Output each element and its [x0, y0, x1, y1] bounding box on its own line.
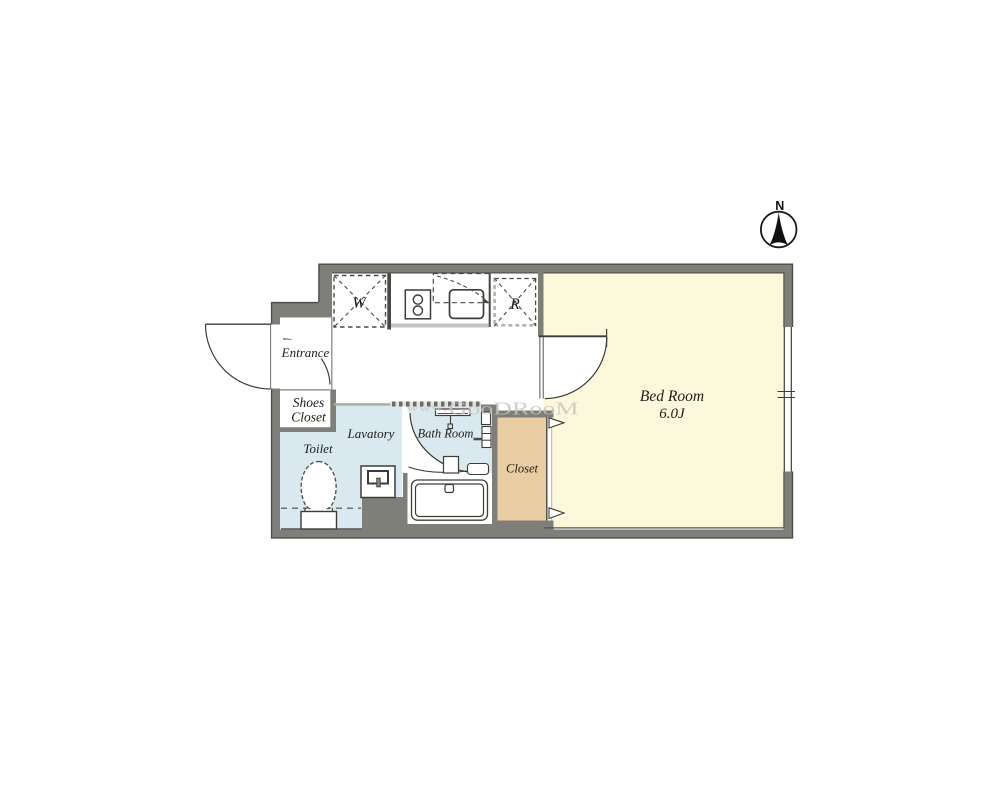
svg-text:Lavatory: Lavatory: [347, 426, 395, 441]
svg-text:W: W: [352, 295, 367, 312]
svg-text:Bed Room: Bed Room: [640, 388, 704, 405]
svg-text:www.: www.: [406, 404, 447, 414]
svg-text:GooDRooM: GooDRooM: [449, 399, 579, 419]
svg-text:Closet: Closet: [291, 410, 327, 425]
svg-text:Entrance: Entrance: [281, 345, 330, 360]
svg-text:R: R: [509, 296, 520, 313]
svg-text:Bath Room: Bath Room: [418, 427, 474, 441]
svg-text:6.0J: 6.0J: [659, 406, 686, 422]
svg-text:Shoes: Shoes: [293, 395, 325, 410]
svg-text:Closet: Closet: [506, 462, 538, 476]
svg-text:Toilet: Toilet: [303, 441, 333, 456]
